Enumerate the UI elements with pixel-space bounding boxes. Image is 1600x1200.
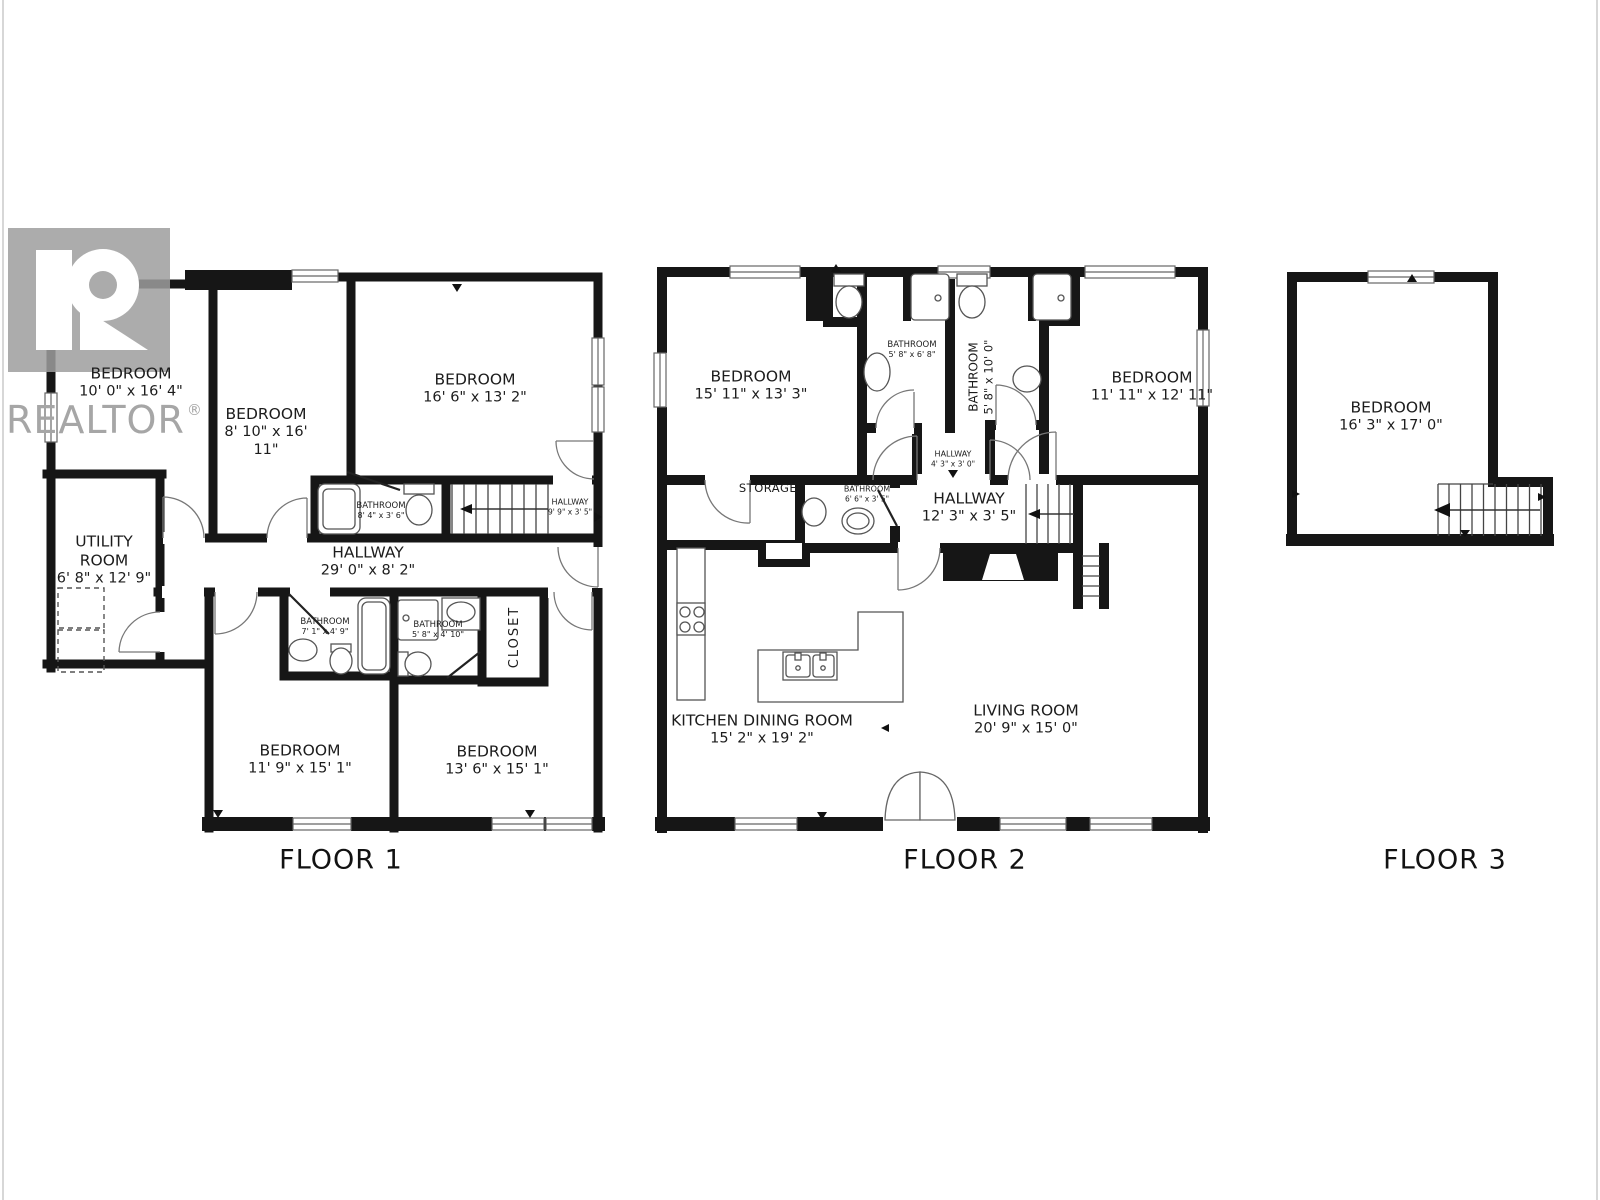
room-label-bedroom-f1-bottomright: BEDROOM13' 6" x 15' 1": [445, 743, 549, 780]
brand-text: REALTOR: [6, 398, 185, 442]
room-label-bedroom-f3: BEDROOM16' 3" x 17' 0": [1339, 399, 1443, 436]
room-label-bathroom-58: BATHROOM5' 8" x 4' 10": [410, 620, 466, 640]
room-label-hallway-main: HALLWAY29' 0" x 8' 2": [321, 544, 415, 581]
room-label-bedroom-f2-topleft: BEDROOM15' 11" x 13' 3": [695, 368, 808, 405]
room-label-bathroom-66: BATHROOM6' 6" x 3' 5": [837, 485, 897, 504]
registered-mark: ®: [187, 401, 203, 419]
room-label-hallway-f2: HALLWAY12' 3" x 3' 5": [922, 490, 1016, 527]
realtor-logo: [8, 228, 170, 372]
room-label-bathroom-vertical: BATHROOM5' 8" x 10' 0": [967, 340, 996, 415]
room-label-storage: STORAGE: [739, 481, 797, 495]
room-label-kitchen-dining: KITCHEN DINING ROOM15' 2" x 19' 2": [671, 712, 853, 749]
floor3-caption: FLOOR 3: [1383, 845, 1507, 876]
room-label-closet: CLOSET: [507, 606, 523, 669]
realtor-watermark-text: REALTOR®: [6, 398, 203, 442]
room-label-hallway-stairs: HALLWAY9' 9" x 3' 5": [540, 498, 600, 517]
room-label-bathroom-84: BATHROOM8' 4" x 3' 6": [341, 501, 421, 521]
floor1-caption: FLOOR 1: [279, 845, 403, 876]
room-label-utility-room: UTILITY ROOM6' 8" x 12' 9": [52, 532, 156, 588]
room-label-bedroom-f1-bottomleft: BEDROOM11' 9" x 15' 1": [248, 742, 352, 779]
room-label-living-room: LIVING ROOM20' 9" x 15' 0": [973, 702, 1078, 739]
room-label-bedroom-f1-middle: BEDROOM8' 10" x 16' 11": [210, 405, 322, 459]
room-label-hallway-small: HALLWAY4' 3" x 3' 0": [913, 450, 993, 469]
room-label-bedroom-f1-right: BEDROOM16' 6" x 13' 2": [423, 371, 527, 408]
room-label-bathroom-71: BATHROOM7' 1" x 4' 9": [285, 617, 365, 637]
room-label-bedroom-f1-topleft: BEDROOM10' 0" x 16' 4": [79, 365, 183, 402]
room-label-bathroom-568: BATHROOM5' 8" x 6' 8": [872, 340, 952, 360]
floorplan-page: REALTOR® BEDROOM10' 0" x 16' 4" BEDROOM8…: [0, 0, 1600, 1200]
room-label-bedroom-f2-topright: BEDROOM11' 11" x 12' 11": [1091, 369, 1213, 406]
floorplan-drawing: [0, 0, 1600, 1200]
floor2-caption: FLOOR 2: [903, 845, 1027, 876]
